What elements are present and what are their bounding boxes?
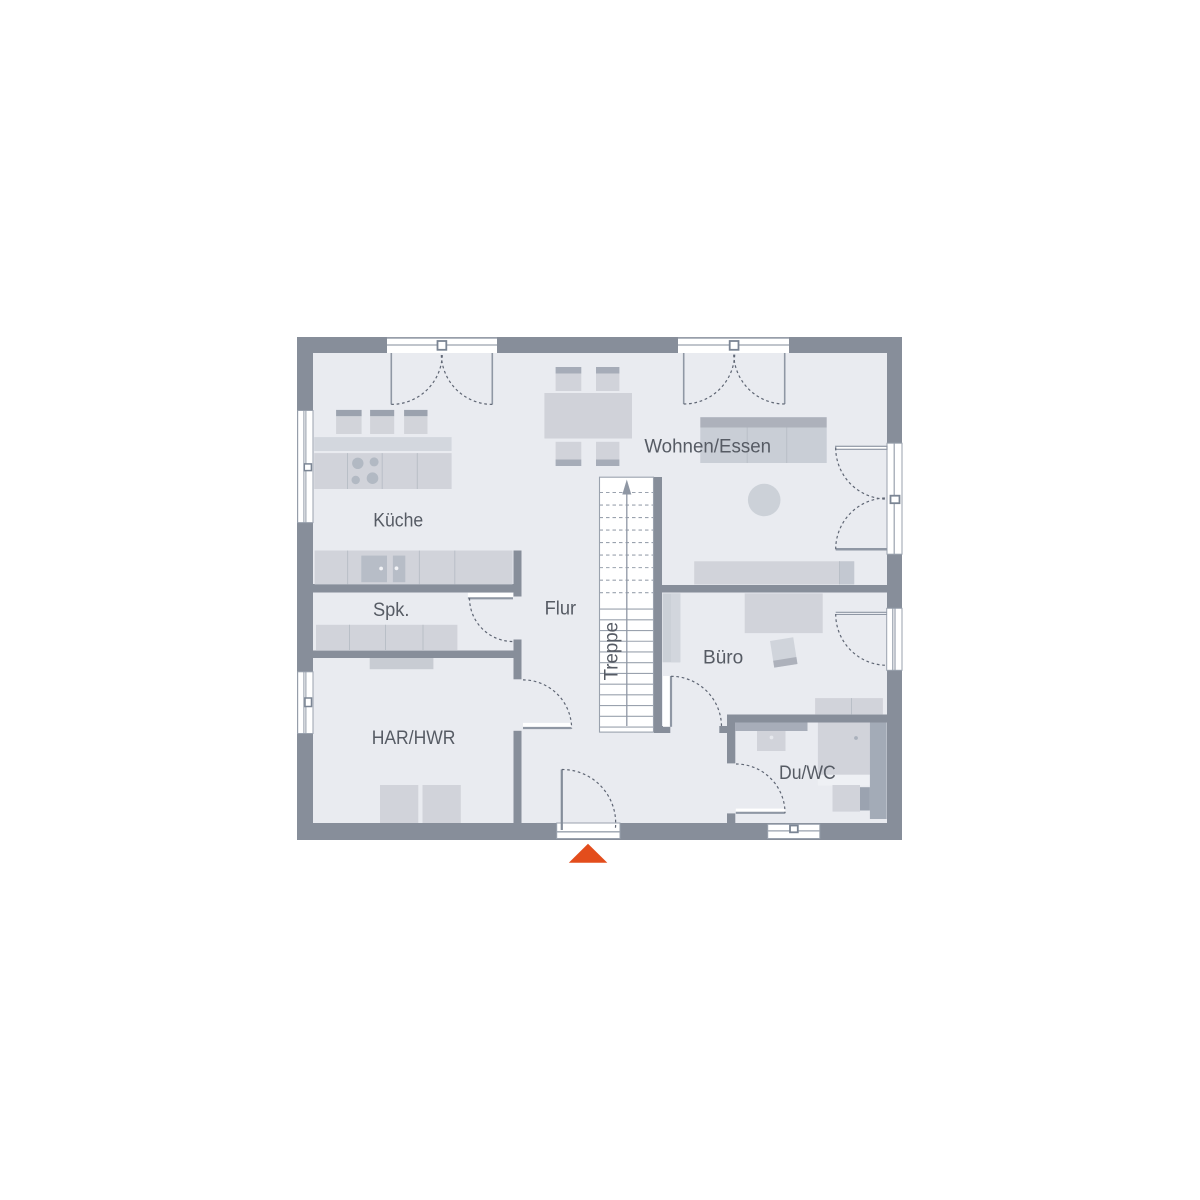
svg-text:Spk.: Spk. <box>373 600 410 621</box>
svg-text:Treppe: Treppe <box>602 622 623 680</box>
svg-text:Flur: Flur <box>545 599 577 620</box>
svg-text:Büro: Büro <box>703 647 743 668</box>
svg-text:Du/WC: Du/WC <box>779 763 836 784</box>
svg-text:Wohnen/Essen: Wohnen/Essen <box>644 437 771 458</box>
svg-text:Küche: Küche <box>373 510 423 531</box>
svg-text:HAR/HWR: HAR/HWR <box>372 728 456 749</box>
